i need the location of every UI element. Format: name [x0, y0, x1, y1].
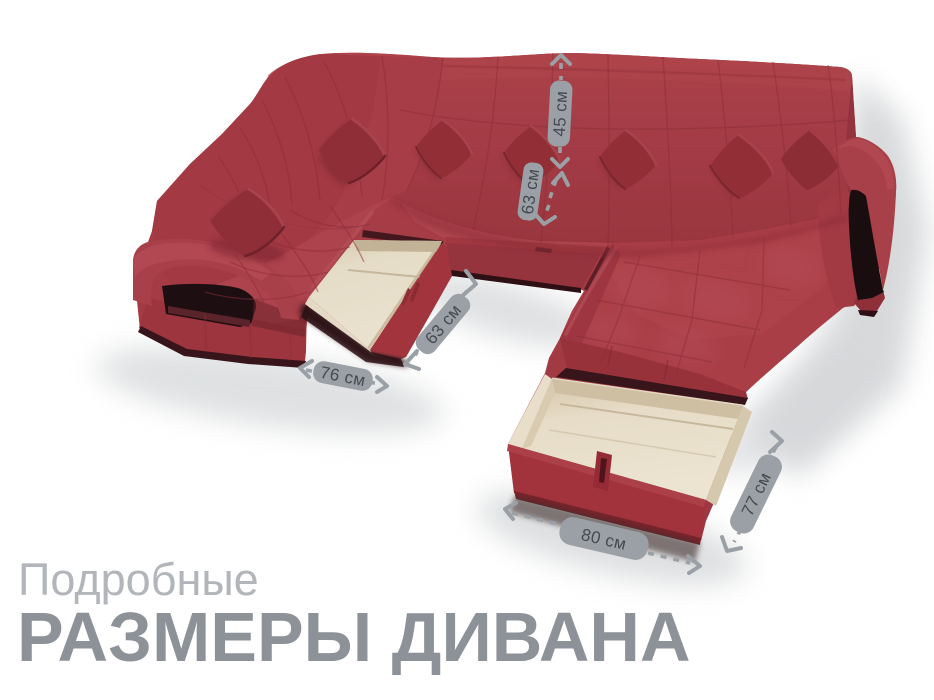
svg-text:РАЗМЕРЫ ДИВАНА: РАЗМЕРЫ ДИВАНА — [17, 598, 691, 676]
svg-text:45 см: 45 см — [550, 90, 571, 137]
